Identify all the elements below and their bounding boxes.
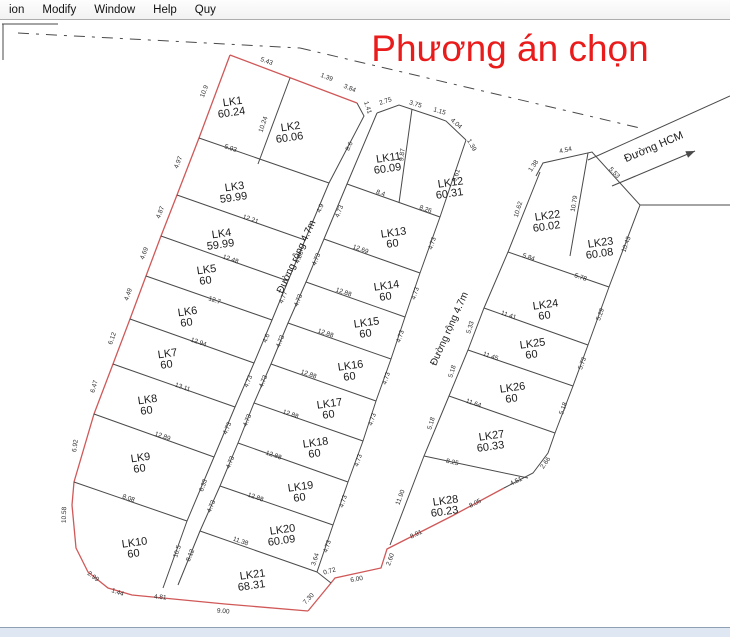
lot-area-lk4: 59.99 [206, 237, 235, 253]
dim-label: 4.73 [311, 252, 322, 267]
dim-label: 8.25 [445, 458, 459, 468]
lot-area-lk3: 59.99 [219, 190, 248, 206]
menu-item-ion[interactable]: ion [0, 2, 33, 18]
dim-label: 10.43 [621, 235, 633, 253]
plan-title: Phương án chọn [340, 28, 680, 70]
dim-label: 5.53 [607, 166, 621, 180]
dim-label: 6.47 [89, 379, 99, 393]
boundary-red-line [230, 55, 357, 103]
dim-label: 4.73 [410, 286, 421, 301]
dim-label: 5.73 [577, 356, 588, 371]
dim-label: 1.39 [319, 72, 334, 83]
lot-area-lk17: 60 [322, 408, 336, 422]
lot-area-lk25: 60 [525, 348, 539, 362]
dim-label: 8.12 [185, 548, 196, 563]
parcel-line [220, 486, 333, 525]
dim-label: 6.92 [71, 439, 80, 453]
dim-label: 12.88 [335, 287, 353, 299]
dim-label: 4.6 [262, 333, 272, 344]
dim-label: 4.73 [222, 421, 234, 436]
parcel-line [163, 103, 364, 588]
dim-label: 4.73 [322, 539, 333, 554]
parcel-line [424, 456, 528, 478]
dim-label: 12.7 [207, 295, 222, 306]
dim-label: 6.12 [107, 331, 118, 346]
dim-label: 8.6 [345, 140, 355, 151]
parcel-line [324, 239, 420, 273]
boundary-dashed-line [18, 33, 300, 48]
dim-label: 2.66 [539, 456, 552, 471]
dim-label: 12.21 [242, 214, 260, 226]
parcel-line [288, 323, 391, 359]
dim-label: 4.9 [316, 203, 326, 214]
lot-area-lk10: 60 [127, 547, 141, 561]
dim-label: 12.94 [190, 337, 208, 349]
dim-label: 11.45 [482, 351, 500, 363]
lot-area-lk8: 60 [140, 404, 154, 418]
dim-label: 6.33 [198, 478, 209, 493]
menu-item-modify[interactable]: Modify [33, 2, 85, 18]
lot-area-lk14: 60 [379, 290, 393, 304]
dim-label: 5.43 [259, 56, 274, 67]
dim-label: 5.18 [447, 364, 458, 379]
lot-area-lk20: 60.09 [267, 533, 296, 549]
lot-area-lk13: 60 [386, 237, 400, 251]
lot-area-lk19: 60 [293, 491, 307, 505]
dim-label: 4.73 [395, 329, 406, 344]
dim-label: 4.73 [334, 204, 345, 219]
lot-area-lk22: 60.02 [532, 219, 561, 235]
dim-label: 1.39 [465, 138, 478, 153]
dim-label: 4.73 [427, 236, 438, 251]
dim-label: 4.73 [258, 374, 269, 389]
dim-label: 5.29 [595, 307, 606, 322]
parcel-line [254, 403, 363, 441]
lot-area-lk15: 60 [359, 327, 373, 341]
dim-label: 9.00 [217, 607, 231, 615]
dim-label: 4.87 [155, 205, 166, 220]
dim-label: 12.88 [282, 409, 300, 421]
dim-label: 4.81 [154, 593, 168, 601]
lot-area-lk11: 60.09 [373, 161, 402, 177]
dim-label: 12.69 [352, 244, 370, 256]
dim-label: 5.93 [223, 143, 238, 154]
dim-label: 4.73 [275, 334, 286, 349]
dim-label: 10.5 [172, 544, 183, 559]
dim-label: 4.73 [338, 494, 349, 509]
dim-label: 4.51 [509, 476, 524, 488]
lot-area-lk2: 60.06 [275, 130, 304, 146]
dim-label: 1.41 [362, 100, 373, 115]
lot-area-lk5: 60 [199, 274, 213, 288]
dim-label: 12.48 [222, 254, 240, 266]
dim-label: 4.73 [242, 413, 253, 428]
dim-label: 11.38 [232, 536, 250, 548]
dim-label: 2.75 [378, 96, 393, 107]
dim-label: 10.9 [199, 84, 210, 99]
dim-label: 4.73 [381, 371, 392, 386]
dim-label: 4.04 [449, 117, 463, 131]
dim-label: 5.84 [521, 252, 536, 263]
dim-label: 11.90 [395, 489, 407, 507]
parcel-line [200, 531, 317, 572]
parcel-line [390, 172, 540, 545]
dim-label: 10.58 [61, 506, 69, 523]
dim-label: 12.88 [300, 369, 318, 381]
dim-label: 8.26 [418, 204, 433, 215]
dim-label: 2.99 [86, 570, 101, 584]
dim-label: 10.24 [258, 115, 270, 133]
dim-label: 2.60 [385, 552, 396, 567]
dim-label: 4.69 [139, 246, 150, 261]
dim-label: 11.41 [500, 310, 518, 322]
dim-label: 11.64 [465, 398, 483, 410]
dim-label: 4.73 [353, 453, 364, 468]
dim-label: 8.08 [121, 493, 136, 504]
lot-area-lk9: 60 [133, 462, 147, 476]
status-bar [0, 627, 730, 637]
dim-label: 1.15 [432, 106, 447, 117]
menu-item-quy[interactable]: Quy [186, 2, 225, 18]
lot-area-lk18: 60 [308, 447, 322, 461]
dim-label: 4.73 [243, 374, 255, 389]
lot-area-lk28: 60.23 [430, 504, 459, 520]
menu-bar: ionModifyWindowHelpQuy [0, 0, 730, 20]
dim-label: 6.00 [350, 575, 364, 584]
menu-item-help[interactable]: Help [144, 2, 186, 18]
dim-label: 4.73 [367, 412, 378, 427]
dim-label: 4.54 [559, 146, 573, 156]
lot-area-lk12: 60.31 [435, 186, 464, 202]
dim-label: 3.84 [342, 83, 357, 95]
dim-label: 4.97 [173, 155, 184, 170]
lot-area-lk27: 60.33 [476, 439, 505, 455]
dim-label: 1.44 [110, 587, 125, 598]
lot-area-lk1: 60.24 [217, 105, 246, 121]
dim-label: 0.72 [323, 566, 337, 576]
dim-label: 12.88 [247, 492, 265, 504]
dim-label: 5.78 [573, 272, 588, 283]
lot-area-lk26: 60 [505, 392, 519, 406]
parcel-line [199, 138, 329, 183]
dim-label: 4.49 [123, 287, 134, 302]
drawing-viewport[interactable]: LK160.24LK260.06LK359.99LK459.99LK560LK6… [0, 0, 730, 637]
dim-label: 12.88 [265, 450, 283, 462]
parcel-line [238, 443, 348, 482]
lot-area-lk16: 60 [343, 370, 357, 384]
road-hcm-arrowhead [685, 151, 695, 158]
lot-area-lk23: 60.08 [585, 246, 614, 262]
dim-label: 8.91 [409, 529, 424, 541]
lot-area-lk24: 60 [538, 309, 552, 323]
dim-label: 4.73 [293, 293, 304, 308]
dim-label: 8.05 [468, 497, 483, 509]
lot-area-lk7: 60 [160, 358, 174, 372]
cad-window: ionModifyWindowHelpQuy LK160.24LK260.06L… [0, 0, 730, 637]
dim-label: 3.75 [408, 99, 422, 109]
lot-area-lk6: 60 [180, 316, 194, 330]
dim-label: 13.11 [174, 382, 192, 394]
menu-item-window[interactable]: Window [85, 2, 144, 18]
dim-label: 12.88 [317, 328, 335, 340]
dim-label: 4.73 [206, 499, 217, 514]
lot-area-lk21: 68.31 [237, 578, 266, 594]
dim-label: 4.73 [225, 455, 236, 470]
dim-label: 5.18 [558, 401, 569, 416]
dim-label: 12.89 [154, 431, 172, 443]
road-2-label: Đường rộng 4.7m [429, 290, 471, 367]
